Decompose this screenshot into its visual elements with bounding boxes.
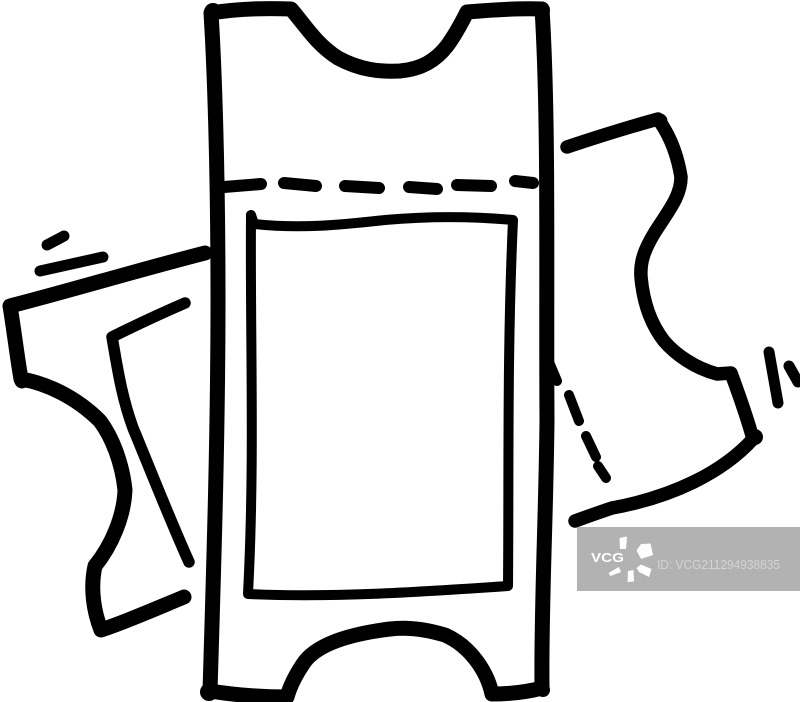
svg-text:VCG: VCG (591, 550, 624, 565)
svg-text:ID: VCG211294938835: ID: VCG211294938835 (657, 557, 780, 572)
